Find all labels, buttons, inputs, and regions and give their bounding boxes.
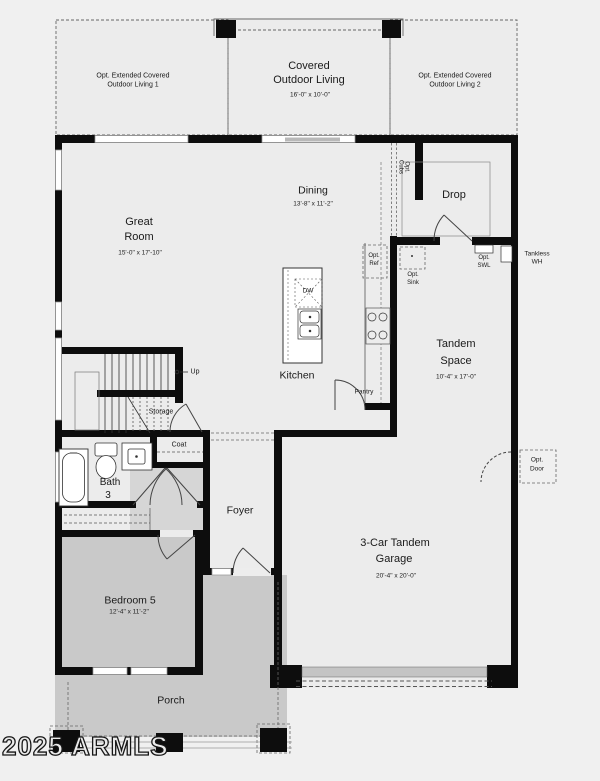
wall-bedroom-top-left: [55, 530, 160, 537]
great-room-label-line1: Great: [125, 217, 153, 229]
porch-label: Porch: [157, 695, 184, 706]
great-room-label-line2: Room: [124, 232, 153, 244]
floor-plan-drawing: [0, 0, 600, 781]
up-label: Up: [191, 368, 200, 375]
wall-garage-corner-left: [270, 665, 302, 688]
wall-cubbies: [415, 143, 423, 200]
wall-pantry: [365, 403, 397, 410]
window-foyer-sidelite: [212, 569, 231, 576]
window-bedroom-1: [93, 668, 127, 675]
wall-garage-left: [274, 430, 282, 672]
opt-cubs-line1: Opt.: [403, 160, 409, 174]
bath3-label-line1: Bath: [100, 478, 121, 489]
wall-coat-bottom: [153, 462, 210, 468]
porch-post-right: [260, 728, 287, 752]
great-room-dim: 15'-0" x 17'-10": [118, 251, 162, 258]
drop-label: Drop: [442, 190, 466, 202]
opt-cubs-line2: Cubs: [397, 160, 403, 174]
wall-exterior-right: [511, 135, 518, 688]
opt-outdoor-1-label-line2: Outdoor Living 1: [107, 81, 158, 88]
wall-stair-mid: [97, 390, 183, 397]
opt-sink-label-line1: Opt.: [407, 272, 418, 278]
wall-greatroom-stairs: [55, 347, 183, 354]
tankless-wh-label-line1: Tankless: [524, 252, 549, 259]
window-top-left: [95, 136, 188, 143]
dishwasher-label: DW: [303, 289, 314, 296]
wall-bedroom-right: [195, 537, 203, 675]
bathtub-icon: [59, 449, 88, 506]
storage-label: Storage: [149, 408, 174, 415]
opt-ref-label-line2: Ref: [369, 261, 378, 267]
vanity-sink-icon: [122, 443, 152, 470]
armls-watermark: 2025 ARMLS: [2, 731, 169, 762]
kitchen-label: Kitchen: [279, 370, 314, 381]
covered-outdoor-label-line2: Outdoor Living: [273, 75, 345, 87]
bedroom5-label: Bedroom 5: [104, 595, 155, 606]
toilet-icon: [95, 443, 117, 479]
window-greatroom-2: [56, 302, 62, 330]
opt-ref-label-line1: Opt.: [368, 253, 379, 259]
bedroom5-dim: 12'-4" x 11'-2": [109, 610, 149, 617]
wall-bedroom-bottom: [55, 667, 203, 675]
opt-outdoor-2-label-line1: Opt. Extended Covered: [418, 72, 491, 79]
wall-garage-north: [274, 430, 397, 437]
cooktop-icon: [366, 308, 390, 344]
wall-bath-top: [55, 430, 210, 437]
opt-cubs-label: Opt. Cubs: [397, 160, 410, 174]
opt-door-label-line1: Opt.: [531, 458, 543, 465]
tankless-wh-label-line2: WH: [532, 260, 543, 267]
tandem-space-dim: 10'-4" x 17'-0": [436, 375, 476, 382]
dining-label: Dining: [298, 185, 328, 196]
covered-outdoor-label-line1: Covered: [288, 61, 330, 73]
opt-sink-drain: [411, 255, 413, 257]
kitchen-sink-icon: [298, 309, 321, 339]
foyer-label: Foyer: [227, 505, 254, 516]
opt-outdoor-1-label-line1: Opt. Extended Covered: [96, 72, 169, 79]
window-greatroom-1: [56, 150, 62, 190]
opt-outdoor-2-label-line2: Outdoor Living 2: [429, 81, 480, 88]
tankless-wh-box: [501, 246, 512, 262]
opt-door-label-line2: Door: [530, 467, 544, 474]
patio-post-left: [216, 20, 236, 38]
covered-outdoor-dim: 16'-0" x 10'-0": [290, 93, 330, 100]
floor-plan-canvas: Opt. Extended Covered Outdoor Living 1 C…: [0, 0, 600, 781]
opt-swl-label-line2: SWL: [477, 263, 490, 269]
patio-post-right: [382, 20, 401, 38]
garage-label-line2: Garage: [376, 554, 413, 566]
wall-bedroom-top-right: [193, 530, 210, 537]
coat-label: Coat: [172, 441, 187, 448]
pantry-label: Pantry: [355, 390, 374, 397]
opt-swl-box: [475, 245, 493, 253]
hall-fill: [130, 468, 203, 530]
bath3-label-line2: 3: [105, 491, 111, 502]
opt-sink-label-line2: Sink: [407, 280, 419, 286]
garage-label-line1: 3-Car Tandem: [360, 538, 430, 550]
opt-swl-label-line1: Opt.: [478, 255, 489, 261]
dining-dim: 13'-8" x 11'-2": [293, 202, 333, 209]
tandem-space-label-line2: Space: [440, 356, 471, 368]
tandem-space-label-line1: Tandem: [436, 339, 475, 351]
wall-garage-corner-right: [487, 665, 518, 688]
patio-slider-panel: [285, 138, 340, 142]
window-greatroom-3: [56, 338, 62, 420]
garage-dim: 20'-4" x 20'-0": [376, 574, 416, 581]
window-bedroom-2: [131, 668, 167, 675]
